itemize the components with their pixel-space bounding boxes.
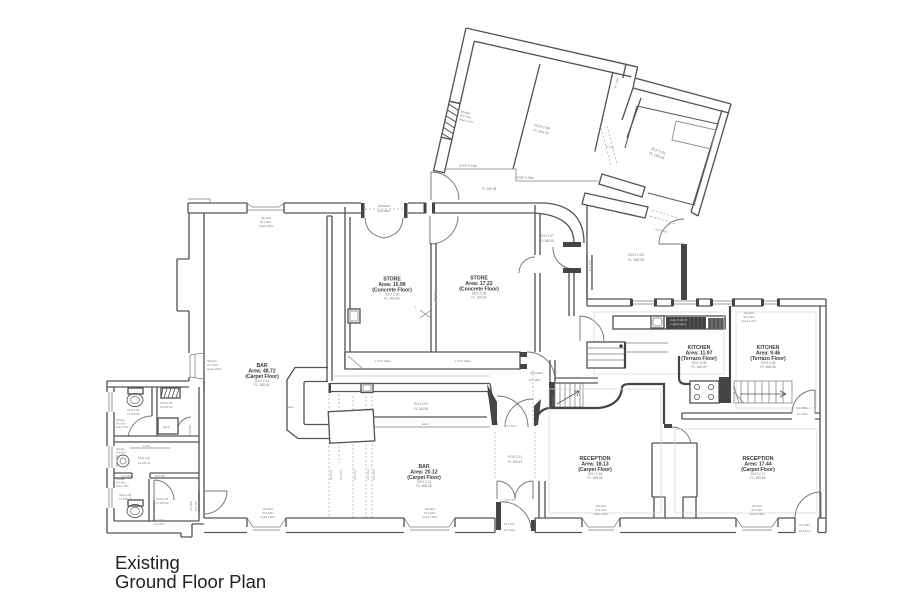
- svg-text:FL 165.43: FL 165.43: [508, 460, 522, 464]
- svg-text:head 2.00m: head 2.00m: [594, 512, 609, 516]
- svg-text:Ground Floor Plan: Ground Floor Plan: [115, 571, 266, 592]
- svg-text:head 2.30m: head 2.30m: [261, 515, 276, 519]
- svg-text:FL 165.20: FL 165.20: [119, 497, 132, 501]
- svg-text:SCH 2.21: SCH 2.21: [508, 455, 522, 459]
- svg-text:FL 165.60: FL 165.60: [750, 476, 765, 480]
- svg-text:FL 165.52: FL 165.52: [540, 239, 554, 243]
- svg-text:FL 165.26: FL 165.26: [127, 412, 140, 416]
- svg-text:Ht 2.17m: Ht 2.17m: [329, 469, 333, 480]
- svg-text:Ht 2.17m: Ht 2.17m: [366, 469, 370, 480]
- svg-text:SCH 2.05: SCH 2.05: [628, 253, 644, 257]
- svg-text:FL 165.45: FL 165.45: [254, 383, 269, 387]
- svg-text:FL 165.00: FL 165.00: [691, 365, 706, 369]
- svg-text:weight approx: weight approx: [671, 323, 687, 326]
- svg-text:MODERN: MODERN: [378, 204, 390, 208]
- svg-text:SCH 2.91: SCH 2.91: [414, 402, 428, 406]
- svg-text:Ht 1.96m: Ht 1.96m: [799, 523, 811, 527]
- svg-text:1 COT WALL: 1 COT WALL: [375, 359, 392, 363]
- svg-text:FL 165.05: FL 165.05: [760, 365, 775, 369]
- svg-text:FL 165.38: FL 165.38: [482, 187, 496, 191]
- svg-text:Ht 2.16m: Ht 2.16m: [121, 474, 132, 478]
- svg-text:Ht 1.87m: Ht 1.87m: [799, 529, 811, 533]
- svg-text:Ht 2.17m: Ht 2.17m: [372, 469, 376, 480]
- svg-text:SCH 2.20: SCH 2.20: [138, 456, 151, 460]
- svg-text:W 0.75m: W 0.75m: [195, 501, 198, 511]
- svg-text:head 2.30m: head 2.30m: [423, 515, 438, 519]
- svg-text:head 2.05m: head 2.05m: [207, 367, 222, 371]
- svg-text:FL 165.26: FL 165.26: [138, 461, 151, 465]
- svg-text:head 2.05m: head 2.05m: [750, 512, 765, 516]
- svg-text:head 1.70m: head 1.70m: [742, 319, 757, 323]
- svg-text:head 1.78m: head 1.78m: [116, 426, 129, 429]
- svg-text:Ht 2.17m: Ht 2.17m: [339, 469, 343, 480]
- svg-text:W 0.75m: W 0.75m: [505, 498, 515, 502]
- svg-text:Ht 2.05m: Ht 2.05m: [154, 522, 165, 526]
- svg-text:Ht 1.98m: Ht 1.98m: [529, 378, 541, 382]
- svg-text:AGA 1.10x0.66: AGA 1.10x0.66: [671, 319, 688, 322]
- svg-text:Existing: Existing: [115, 552, 180, 573]
- svg-text:Ht 2.17m: Ht 2.17m: [353, 469, 357, 480]
- svg-text:Ht 2.16m: Ht 2.16m: [155, 474, 166, 478]
- svg-text:STEP 0.16m: STEP 0.16m: [459, 164, 477, 168]
- svg-text:STEP 0.16m: STEP 0.16m: [516, 176, 534, 180]
- svg-text:FL 164.85: FL 164.85: [414, 407, 428, 411]
- svg-text:W 0.45m: W 0.45m: [116, 452, 126, 455]
- svg-text:Ht 1.67m: Ht 1.67m: [504, 522, 516, 526]
- svg-text:head 2.05m: head 2.05m: [259, 224, 274, 228]
- svg-text:SCH 2.27: SCH 2.27: [540, 234, 554, 238]
- svg-text:FL 164.93: FL 164.93: [384, 297, 399, 301]
- svg-text:Ht 1.80m: Ht 1.80m: [797, 406, 809, 410]
- svg-text:DELCO: DELCO: [433, 291, 437, 301]
- svg-text:head 1.78m: head 1.78m: [116, 485, 129, 488]
- svg-text:bank: bank: [288, 405, 294, 409]
- svg-text:Ht 2.00m: Ht 2.00m: [190, 501, 193, 511]
- svg-text:WOODEN: WOODEN: [378, 209, 391, 213]
- svg-text:FL 165.45: FL 165.45: [416, 484, 431, 488]
- svg-text:Ht 1.80m: Ht 1.80m: [797, 412, 809, 416]
- svg-text:17.03: 17.03: [143, 444, 150, 448]
- svg-text:Ht 1.94m: Ht 1.94m: [504, 528, 516, 532]
- svg-text:bank: bank: [422, 422, 429, 426]
- svg-text:Ht 1.87m: Ht 1.87m: [505, 424, 517, 428]
- svg-text:Ht 2.05m: Ht 2.05m: [189, 425, 192, 435]
- svg-text:Ht 2.02m: Ht 2.02m: [154, 518, 165, 522]
- svg-text:WOODEN: WOODEN: [530, 371, 543, 375]
- svg-text:hack: hack: [163, 425, 170, 429]
- svg-text:FL 165.20: FL 165.20: [160, 405, 173, 409]
- svg-text:FL 164.93: FL 164.93: [471, 296, 486, 300]
- svg-text:1 COT WALL: 1 COT WALL: [455, 359, 472, 363]
- svg-text:W 0.85m: W 0.85m: [551, 396, 555, 406]
- svg-text:FL 165.20: FL 165.20: [156, 501, 169, 505]
- svg-text:FL 165.45: FL 165.45: [587, 476, 602, 480]
- svg-text:FL 165.38: FL 165.38: [628, 258, 644, 262]
